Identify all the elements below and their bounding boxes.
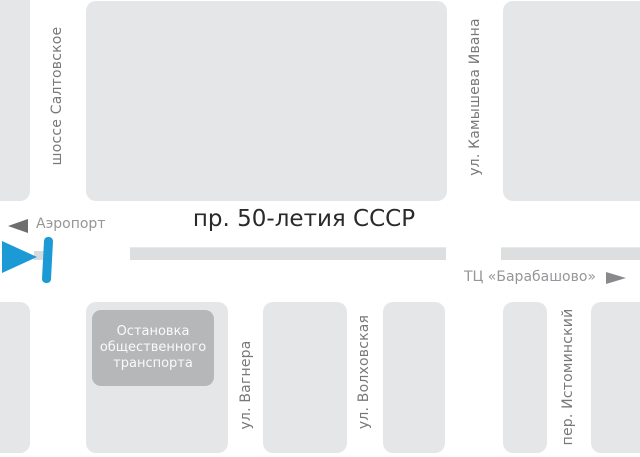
street-label-istominsky: пер. Истоминский [560, 309, 576, 446]
bus-stop-callout: Остановка общественного транспорта [92, 310, 214, 386]
marker-arrow-icon [2, 241, 37, 273]
road-median-left [130, 247, 446, 260]
city-block [0, 302, 30, 453]
street-label-kamysheva: ул. Камышева Ивана [467, 18, 483, 176]
airport-direction-arrow-icon [8, 219, 28, 233]
bus-stop-line: Остановка [92, 324, 214, 340]
street-map: шоссе Салтовское ул. Камышева Ивана ул. … [0, 0, 640, 457]
city-block [263, 302, 347, 453]
airport-direction-label: Аэропорт [36, 216, 105, 232]
city-block [86, 1, 447, 201]
city-block [503, 1, 640, 201]
city-block [591, 302, 640, 453]
city-block [503, 302, 547, 453]
bus-stop-line: транспорта [92, 356, 214, 372]
mall-direction-label: ТЦ «Барабашово» [440, 269, 596, 285]
bus-stop-line: общественного [92, 340, 214, 356]
mall-direction-arrow-icon [606, 272, 626, 284]
city-block [383, 302, 445, 453]
street-label-saltovskoe: шоссе Салтовское [49, 27, 65, 166]
road-median-right [501, 247, 640, 260]
main-road-title: пр. 50-летия СССР [134, 206, 474, 232]
street-label-volkhovskaya: ул. Волховская [356, 315, 372, 429]
street-label-vagnera: ул. Вагнера [238, 340, 254, 429]
city-block [0, 0, 30, 201]
marker-bar-icon [42, 237, 53, 283]
